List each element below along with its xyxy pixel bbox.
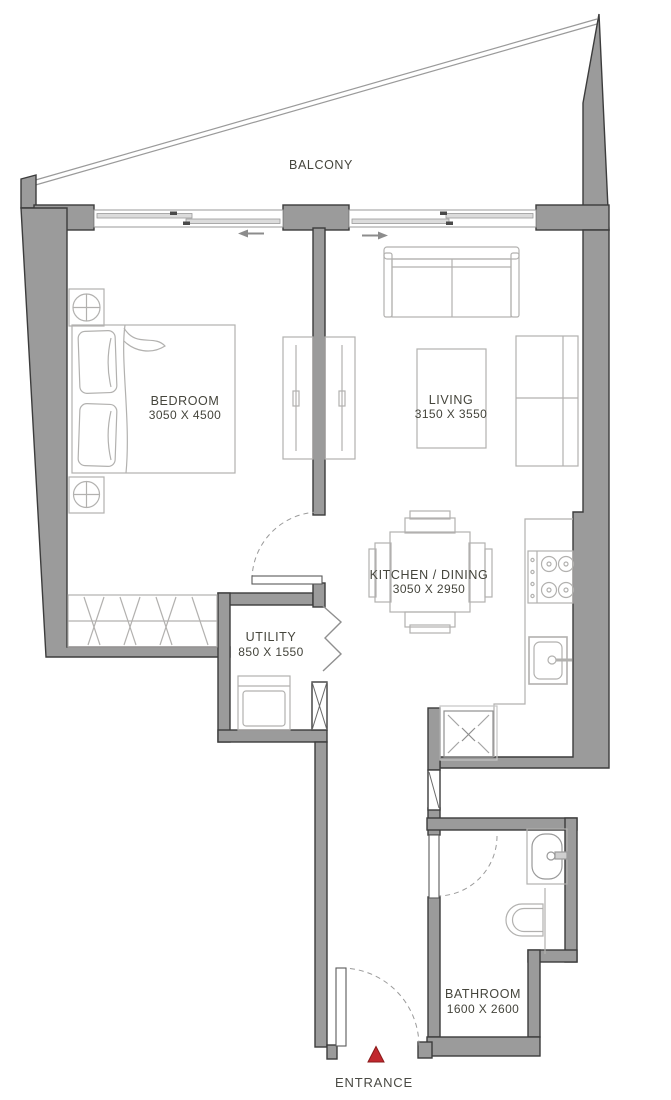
corridor-left-wall: [315, 742, 327, 1047]
utility-bottom-wall: [218, 730, 327, 742]
floor-plan-svg: BALCONY BEDROOM 3050 X 4500 LIVING 3150 …: [0, 0, 671, 1100]
entrance-jamb-right: [418, 1042, 432, 1058]
pier-center: [283, 205, 349, 230]
entrance-marker-icon: [368, 1047, 384, 1063]
bedroom-door-leaf: [252, 576, 322, 584]
bedroom-partition: [313, 228, 325, 515]
vanity-basin: [527, 829, 567, 884]
bathroom-top-wall: [427, 818, 577, 830]
entrance-label: ENTRANCE: [335, 1075, 413, 1090]
corridor-right-wall-upper: [428, 708, 440, 770]
balcony-left-wall: [21, 175, 36, 208]
bathroom-dims: 1600 X 2600: [447, 1002, 519, 1016]
bathroom-bottom-wall: [427, 1037, 540, 1056]
utility-label: UTILITY: [246, 630, 297, 644]
kitchen-dims: 3050 X 2950: [393, 582, 465, 596]
wardrobe-bedroom: [68, 595, 217, 647]
shaft-corridor: [428, 770, 440, 810]
corridor-right-wall-lower: [428, 897, 440, 1037]
slide-arrow-right: [362, 232, 388, 240]
floor-plan: BALCONY BEDROOM 3050 X 4500 LIVING 3150 …: [0, 0, 671, 1100]
shaft-utility: [312, 682, 327, 730]
washer-utility: [238, 676, 290, 730]
left-exterior-wall: [21, 208, 230, 657]
entrance-door-swing: [341, 968, 419, 1046]
nightstand-bottom: [69, 477, 104, 513]
utility-dims: 850 X 1550: [238, 645, 303, 659]
utility-top-wall: [218, 593, 313, 605]
living-label: LIVING: [429, 393, 474, 407]
sofa: [384, 247, 519, 317]
balcony-label: BALCONY: [289, 158, 353, 172]
bathroom-right-wall-lower: [528, 950, 540, 1037]
utility-left-wall: [218, 593, 230, 742]
bedroom-door-stub: [313, 583, 325, 607]
kitchen-sink: [529, 637, 572, 684]
pier-right: [536, 205, 609, 230]
closet-bedroom-side: [283, 337, 313, 459]
bedroom-label: BEDROOM: [151, 394, 220, 408]
toilet: [506, 888, 545, 954]
entrance-door-leaf: [336, 968, 346, 1046]
slide-arrow-left: [238, 230, 264, 238]
kitchen-counter: [494, 519, 573, 757]
nightstand-top: [69, 289, 104, 326]
bathroom-label: BATHROOM: [445, 987, 521, 1001]
stove: [528, 551, 574, 603]
entrance-jamb-left: [327, 1045, 337, 1059]
living-window: [349, 210, 536, 227]
living-dims: 3150 X 3550: [415, 407, 487, 421]
kitchen-label: KITCHEN / DINING: [370, 568, 489, 582]
washer-kitchen: [440, 706, 497, 760]
bedroom-door-swing: [252, 512, 320, 580]
bathroom-door-leaf: [429, 835, 439, 898]
bedroom-window: [94, 210, 283, 227]
tv-unit: [516, 336, 578, 466]
bathroom-door-swing: [437, 836, 497, 896]
right-wall-upper: [583, 14, 609, 230]
closet-living-side: [325, 337, 355, 459]
bedroom-dims: 3050 X 4500: [149, 408, 221, 422]
utility-bifold-door: [323, 606, 341, 671]
